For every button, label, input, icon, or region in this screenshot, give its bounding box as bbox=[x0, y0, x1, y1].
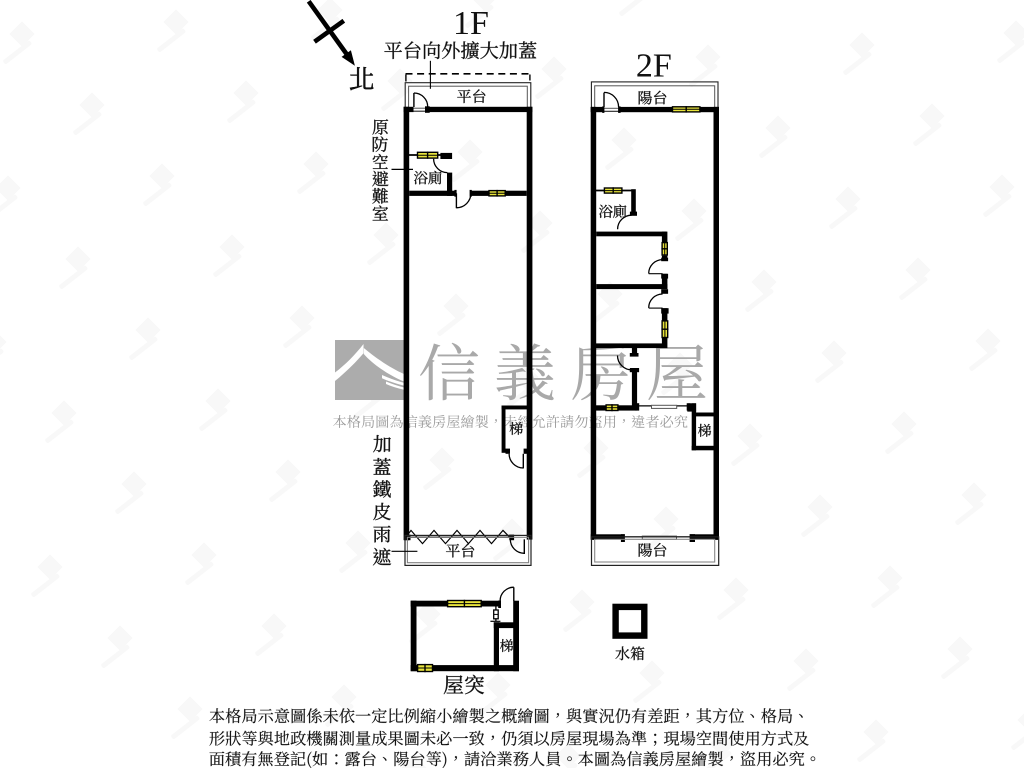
svg-text:2F: 2F bbox=[636, 47, 672, 84]
svg-text:1F: 1F bbox=[453, 5, 489, 42]
